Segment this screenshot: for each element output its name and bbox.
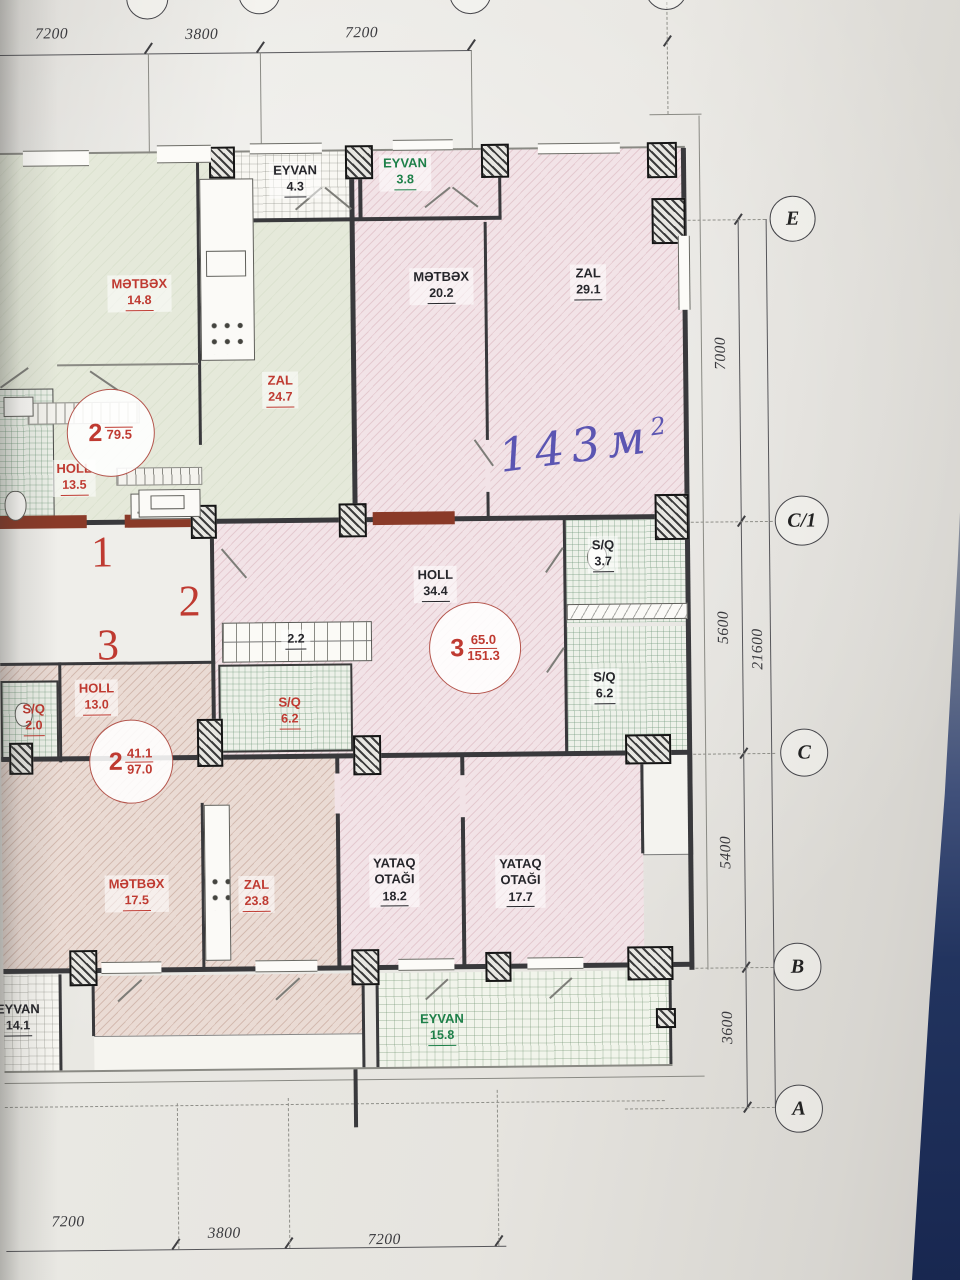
dim-label-5400: 5400 (717, 836, 735, 869)
grid-bubble-e: E (769, 195, 815, 241)
elevator-car (150, 495, 184, 509)
room-name: MƏTBƏX (413, 269, 469, 286)
room-name-line1: YATAQ (373, 855, 416, 872)
room-fill-yataq-2 (462, 753, 644, 967)
grid-bubble-top-2 (238, 0, 280, 14)
window (23, 150, 89, 167)
room-area: 4.3 (284, 180, 306, 198)
window (255, 960, 317, 973)
room-fill-shaft (642, 753, 693, 856)
room-name: S/Q (22, 701, 45, 717)
apartment-number: 3 (450, 634, 464, 663)
room-area: 13.5 (60, 478, 89, 496)
room-fill-apartment2-bottom (1, 756, 340, 972)
room-area: 15.8 (428, 1028, 457, 1046)
room-name: ZAL (574, 265, 603, 282)
dim-tick (256, 41, 265, 53)
kitchen-sink (206, 250, 246, 276)
apartment-area-fraction: 65.0 151.3 (467, 632, 500, 663)
room-area: 17.7 (506, 889, 535, 907)
room-area: 17.5 (122, 893, 151, 911)
dim-label-top-2: 3800 (185, 26, 218, 44)
room-name: MƏTBƏX (111, 276, 167, 293)
room-area: 14.8 (125, 293, 154, 311)
axis-connector (625, 1107, 775, 1110)
room-area: 29.1 (574, 283, 603, 301)
column-block (339, 503, 367, 537)
room-area: 13.0 (82, 698, 111, 716)
apartment-circle-2-top: 2 79.5 (66, 388, 155, 477)
apartment-area-fraction: 79.5 (105, 423, 133, 443)
stove-burners (205, 314, 249, 354)
column-block (485, 952, 511, 982)
column-block-small (656, 1008, 676, 1028)
apartment-number: 2 (88, 418, 102, 447)
dim-label-bottom-3: 7200 (368, 1231, 401, 1249)
apartment-circle-3: 3 65.0 151.3 (429, 602, 522, 695)
balcony-strip-label: 2.2 (281, 629, 311, 650)
door-opening (459, 775, 465, 817)
window (250, 143, 322, 155)
dim-tick (467, 39, 476, 51)
grid-line (148, 53, 150, 153)
room-area: 34.4 (421, 584, 450, 602)
grid-line-dashed (288, 1098, 291, 1248)
grid-line (260, 52, 262, 150)
window (157, 145, 211, 164)
room-label-eyvan-top-left: EYVAN 4.3 (269, 161, 321, 198)
room-name: S/Q (278, 694, 301, 710)
grid-bubble-a: A (775, 1084, 824, 1133)
wall-outer-face-line (650, 114, 702, 116)
column-block (209, 147, 235, 179)
room-label-zal-bottom: ZAL 23.8 (238, 876, 275, 913)
apartment-area-top: 41.1 (126, 746, 154, 762)
column-block (69, 950, 97, 986)
column-block (345, 145, 373, 179)
room-name-line1: YATAQ (499, 856, 542, 873)
room-name-line2: OTAĞI (373, 871, 416, 888)
room-label-metbex-top-left: MƏTBƏX 14.8 (107, 275, 171, 313)
room-area: 23.8 (242, 894, 271, 912)
dim-label-total-21600: 21600 (749, 628, 767, 669)
room-label-yataq-2: YATAQ OTAĞI 17.7 (495, 855, 546, 909)
room-name: ZAL (266, 372, 295, 389)
dim-label-5600: 5600 (715, 611, 733, 644)
entry-wall-maroon (373, 511, 455, 525)
room-name: S/Q (592, 537, 615, 553)
window (101, 961, 161, 974)
floor-plan-photo: 7200 3800 7200 7200 3800 7200 7000 5600 … (0, 0, 960, 1280)
room-label-sq-3-7: S/Q 3.7 (588, 536, 619, 573)
floor-plan-sheet: 7200 3800 7200 7200 3800 7200 7000 5600 … (0, 0, 960, 1280)
room-area: 2.2 (285, 632, 307, 650)
column-block-axis-c (625, 734, 671, 764)
duct-shelf (567, 603, 688, 620)
grid-bubble-b: B (773, 942, 822, 991)
column-block (9, 743, 33, 775)
room-area: 14.1 (4, 1019, 33, 1037)
room-area: 6.2 (594, 686, 616, 704)
grid-bubble-c1: C/1 (775, 495, 830, 546)
room-area: 18.2 (380, 889, 409, 907)
room-area: 6.2 (279, 712, 301, 730)
room-label-sq-6-2-right: S/Q 6.2 (589, 668, 620, 705)
apartment-area-bottom: 97.0 (127, 762, 152, 777)
room-name: EYVAN (383, 155, 427, 172)
grid-line-dashed (177, 1103, 180, 1249)
dim-label-top-1: 7200 (35, 25, 68, 43)
grid-line-dashed (497, 1090, 500, 1246)
grid-line (471, 50, 473, 148)
window (538, 143, 620, 155)
room-label-metbex-bottom: MƏTBƏX 17.5 (105, 875, 169, 913)
dim-line-right-inner (738, 219, 749, 1107)
room-area: 2.0 (23, 718, 45, 736)
room-fill-balcony-brown (93, 973, 364, 1036)
room-name: EYVAN (420, 1011, 464, 1028)
room-label-holl-middle: HOLL 34.4 (414, 566, 458, 603)
window (527, 957, 583, 970)
room-label-eyvan-bottom-left: EYVAN 14.1 (0, 1000, 44, 1037)
door-opening (334, 773, 340, 813)
room-name-line2: OTAĞI (499, 872, 542, 889)
window (398, 958, 454, 971)
room-area: 3.7 (592, 554, 614, 572)
room-area: 20.2 (427, 286, 456, 304)
room-name: S/Q (593, 669, 616, 685)
room-label-zal-top-left: ZAL 24.7 (262, 371, 299, 408)
door-opening (485, 440, 491, 492)
column-block-axis-c1 (654, 494, 688, 540)
room-fill-balcony-band (94, 1033, 364, 1071)
column-block (353, 735, 381, 775)
grid-bubble-top-1 (126, 0, 168, 20)
grid-line-dashed (666, 2, 668, 114)
dim-label-7000: 7000 (712, 337, 730, 370)
wall (58, 974, 62, 1070)
room-label-sq-6-2-left: S/Q 6.2 (274, 693, 305, 730)
room-name: EYVAN (0, 1001, 40, 1018)
room-label-eyvan-top-right: EYVAN 3.8 (379, 154, 431, 191)
column-block-axis-b (627, 946, 673, 980)
dim-line-bottom (6, 1246, 506, 1253)
handwritten-unit: м (603, 409, 655, 468)
room-area: 3.8 (394, 172, 416, 190)
room-label-eyvan-bottom: EYVAN 15.8 (416, 1010, 468, 1047)
room-name: MƏTBƏX (109, 876, 165, 893)
window (678, 236, 691, 310)
toilet (4, 491, 26, 521)
sink (3, 397, 33, 417)
column-block (647, 142, 677, 178)
room-name: ZAL (242, 877, 271, 894)
stair-number-3: 3 (97, 619, 120, 670)
balcony-stem (353, 1069, 358, 1127)
dim-label-bottom-1: 7200 (51, 1213, 84, 1231)
grid-bubble-c: C (780, 728, 829, 777)
room-name: EYVAN (273, 162, 317, 179)
apartment-area-bottom: 151.3 (467, 648, 500, 663)
dim-label-bottom-2: 3800 (208, 1225, 241, 1243)
grid-bubble-top-4 (645, 0, 687, 10)
column-block (351, 949, 379, 985)
room-label-holl-bottom-left: HOLL 13.0 (75, 679, 119, 716)
room-name: HOLL (418, 567, 454, 584)
room-label-zal-top-right: ZAL 29.1 (570, 264, 607, 301)
stove-burners (205, 871, 229, 911)
axis-a-dashed-line (5, 1100, 665, 1108)
apartment-circle-2-bottom: 2 41.1 97.0 (89, 719, 174, 804)
wall (361, 971, 365, 1067)
room-area: 24.7 (266, 390, 295, 408)
room-name: HOLL (79, 680, 115, 697)
dim-tick (144, 42, 153, 54)
wall-outer-face-line (699, 116, 709, 970)
apartment-area-fraction: 41.1 97.0 (126, 746, 154, 777)
column-block (197, 719, 224, 767)
room-label-metbex-top-right: MƏTBƏX 20.2 (409, 268, 473, 306)
window (393, 139, 453, 151)
apartment-area-top: 65.0 (469, 632, 497, 648)
apartment-area-bottom: 79.5 (107, 428, 132, 443)
stair-number-2: 2 (178, 575, 201, 626)
dim-label-top-3: 7200 (345, 24, 378, 42)
dim-label-3600: 3600 (719, 1011, 737, 1044)
column-block (481, 144, 509, 178)
room-label-yataq-1: YATAQ OTAĞI 18.2 (369, 854, 420, 908)
room-label-sq-2-0: S/Q 2.0 (18, 700, 49, 737)
dim-line-top (0, 50, 472, 56)
grid-bubble-top-3 (449, 0, 491, 14)
apartment-number: 2 (109, 747, 123, 776)
stair-number-1: 1 (91, 526, 114, 577)
